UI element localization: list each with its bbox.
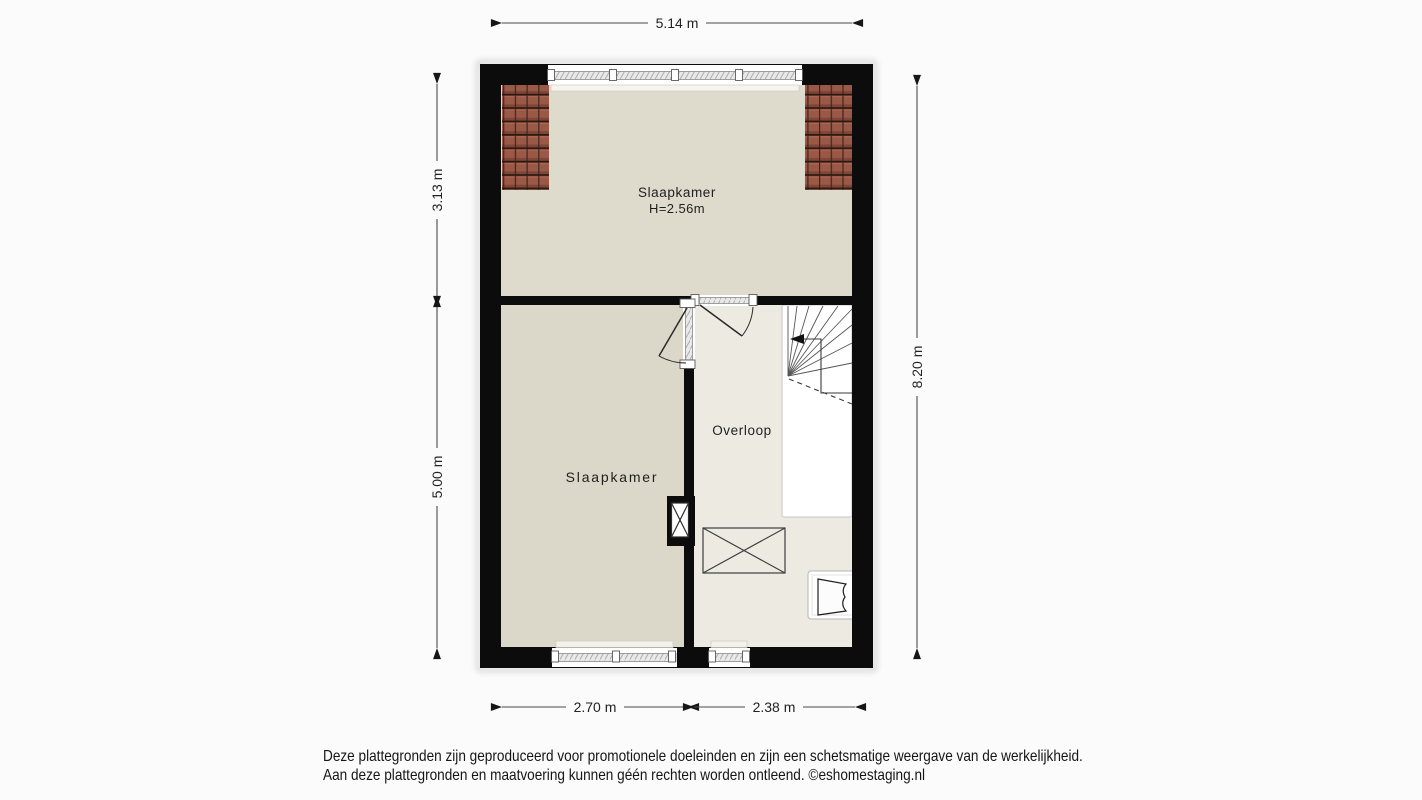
disclaimer: Deze plattegronden zijn geproduceerd voo…: [323, 747, 1083, 785]
dimension-bottom-left: 2.70 m: [502, 699, 688, 715]
room-label-landing: Overloop: [712, 423, 772, 438]
outer-wall-right: [852, 64, 873, 668]
duct-shaft-symbol: [672, 503, 689, 537]
dimension-right: 8.20 m: [909, 86, 925, 648]
svg-text:2.70 m: 2.70 m: [574, 699, 617, 715]
dimension-top: 5.14 m: [502, 15, 852, 31]
dimension-left-lower: 5.00 m: [429, 307, 445, 648]
room-height-bedroom-top: H=2.56m: [649, 201, 705, 216]
window-bottom-right: [709, 641, 751, 667]
divider-wall-right: [752, 296, 852, 305]
svg-text:8.20 m: 8.20 m: [909, 346, 925, 389]
outer-wall-left: [480, 64, 501, 668]
sink: [808, 571, 857, 619]
svg-text:2.38 m: 2.38 m: [753, 699, 796, 715]
disclaimer-line-2: Aan deze plattegronden en maatvoering ku…: [323, 766, 1083, 785]
divider-wall-left: [501, 296, 694, 305]
dimension-left-upper: 3.13 m: [429, 84, 445, 296]
svg-text:5.00 m: 5.00 m: [429, 456, 445, 499]
floorplan-page: Slaapkamer H=2.56m Slaapkamer Overloop 5…: [0, 0, 1422, 800]
roof-slope-left: [502, 85, 549, 190]
window-bottom-left: [552, 641, 678, 667]
window-top: [548, 65, 803, 91]
room-label-bedroom-top: Slaapkamer: [638, 185, 716, 200]
dimension-bottom-right: 2.38 m: [694, 699, 855, 715]
floorplan-drawing: Slaapkamer H=2.56m Slaapkamer Overloop 5…: [0, 0, 1422, 800]
staircase: [782, 305, 852, 517]
disclaimer-line-1: Deze plattegronden zijn geproduceerd voo…: [323, 747, 1083, 766]
svg-text:5.14 m: 5.14 m: [656, 15, 699, 31]
room-label-bedroom-bottom: Slaapkamer: [566, 469, 659, 485]
svg-text:3.13 m: 3.13 m: [429, 169, 445, 212]
roof-slope-right: [805, 85, 852, 190]
